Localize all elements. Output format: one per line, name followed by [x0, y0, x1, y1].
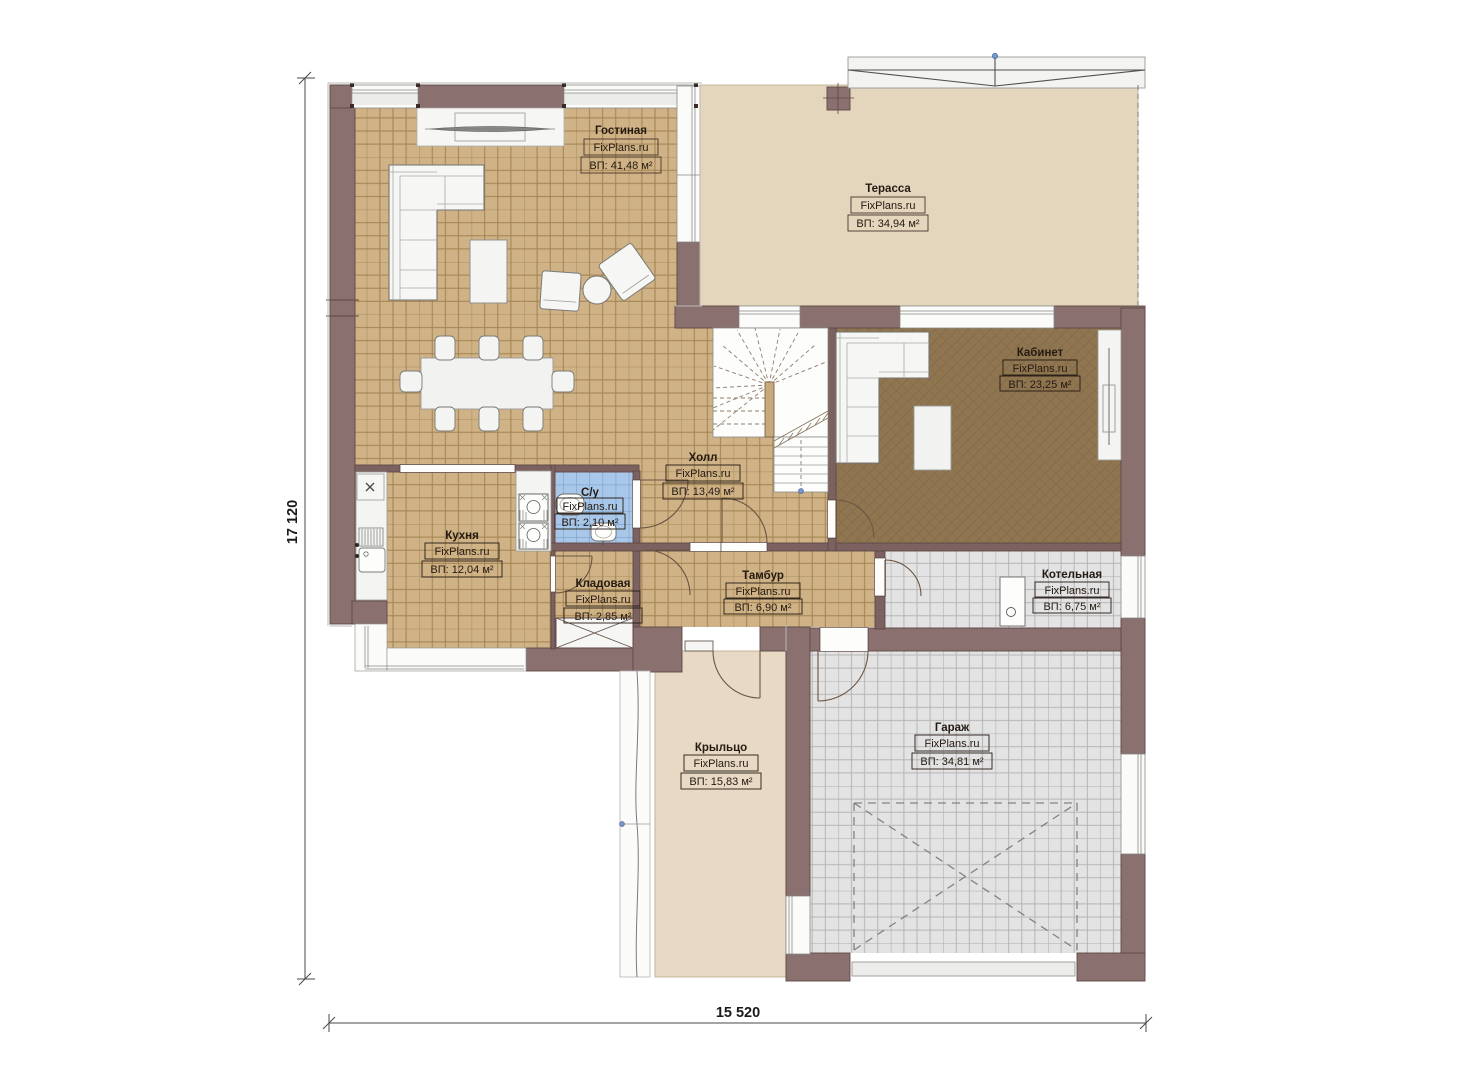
svg-text:ВП: 6,75 м²: ВП: 6,75 м²: [1043, 601, 1100, 613]
svg-text:ВП: 34,94 м²: ВП: 34,94 м²: [856, 218, 920, 230]
svg-text:FixPlans.ru: FixPlans.ru: [860, 200, 915, 212]
svg-text:Крыльцо: Крыльцо: [695, 742, 747, 754]
svg-text:FixPlans.ru: FixPlans.ru: [1044, 585, 1099, 597]
svg-text:ВП: 34,81 м²: ВП: 34,81 м²: [920, 756, 984, 768]
svg-text:FixPlans.ru: FixPlans.ru: [1012, 363, 1067, 375]
svg-text:ВП: 13,49 м²: ВП: 13,49 м²: [671, 486, 735, 498]
svg-text:FixPlans.ru: FixPlans.ru: [675, 468, 730, 480]
svg-text:Котельная: Котельная: [1042, 569, 1102, 581]
svg-text:15 520: 15 520: [716, 1005, 760, 1021]
svg-text:ВП: 6,90 м²: ВП: 6,90 м²: [734, 602, 791, 614]
svg-text:FixPlans.ru: FixPlans.ru: [593, 142, 648, 154]
svg-text:17 120: 17 120: [285, 500, 301, 544]
svg-text:ВП: 2,85 м²: ВП: 2,85 м²: [574, 611, 631, 623]
svg-text:Терасса: Терасса: [865, 183, 911, 195]
svg-text:Кухня: Кухня: [445, 530, 479, 542]
svg-text:FixPlans.ru: FixPlans.ru: [575, 594, 630, 606]
svg-text:Гараж: Гараж: [935, 722, 970, 734]
svg-text:Тамбур: Тамбур: [742, 570, 784, 582]
svg-text:FixPlans.ru: FixPlans.ru: [924, 738, 979, 750]
svg-text:FixPlans.ru: FixPlans.ru: [693, 758, 748, 770]
svg-text:Гостиная: Гостиная: [595, 125, 647, 137]
svg-text:ВП: 15,83 м²: ВП: 15,83 м²: [689, 776, 753, 788]
svg-text:FixPlans.ru: FixPlans.ru: [434, 546, 489, 558]
svg-text:ВП: 12,04 м²: ВП: 12,04 м²: [430, 564, 494, 576]
svg-text:FixPlans.ru: FixPlans.ru: [735, 586, 790, 598]
svg-text:ВП: 41,48 м²: ВП: 41,48 м²: [589, 160, 653, 172]
svg-text:Холл: Холл: [689, 452, 718, 464]
svg-text:С/у: С/у: [581, 487, 600, 499]
svg-text:FixPlans.ru: FixPlans.ru: [562, 501, 617, 513]
svg-text:Кабинет: Кабинет: [1017, 347, 1064, 359]
svg-text:Кладовая: Кладовая: [575, 578, 630, 590]
svg-text:ВП: 2,10 м²: ВП: 2,10 м²: [561, 517, 618, 529]
svg-text:ВП: 23,25 м²: ВП: 23,25 м²: [1008, 379, 1072, 391]
